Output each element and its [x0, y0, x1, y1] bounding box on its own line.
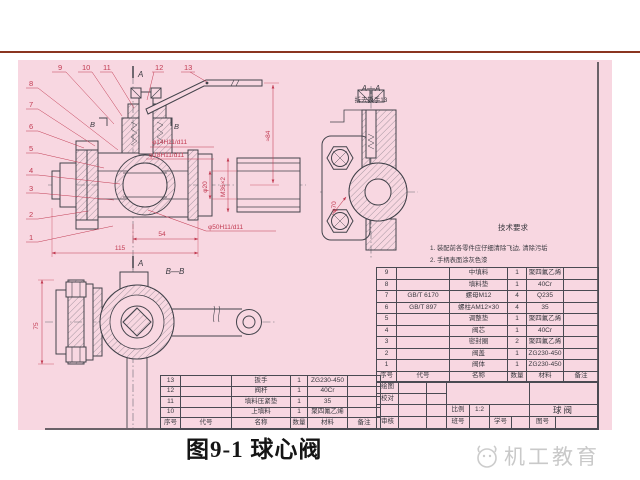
bom-cell: 5: [377, 314, 397, 326]
bom-cell: 填料压紧垫: [232, 397, 291, 408]
class-label: 班号: [447, 417, 470, 429]
bom-cell: 3: [377, 337, 397, 349]
watermark-logo-icon: [474, 442, 500, 470]
bom-cell: Q235: [527, 291, 564, 303]
scale-label: 比例: [447, 405, 470, 417]
drawing-title: 球阀: [530, 405, 598, 417]
bom-cell: 4: [508, 303, 527, 315]
bom-cell: 聚四氟乙烯: [527, 337, 564, 349]
bom-cell: 螺母M12: [450, 291, 508, 303]
bom-header: 序号: [161, 418, 181, 429]
bom-header: 名称: [232, 418, 291, 429]
bom-cell: 调整垫: [450, 314, 508, 326]
scanned-textbook-page: φ14H11/d11 φ18H11/d11 φ50H11/d11 φ20 M36…: [0, 0, 640, 480]
bom-cell: 1: [291, 387, 308, 398]
bom-cell: 4: [377, 326, 397, 338]
top-divider-line: [0, 51, 640, 53]
bom-cell: 1: [508, 314, 527, 326]
bom-cell: 35: [308, 397, 348, 408]
bom-cell: 1: [291, 397, 308, 408]
sheet-label: 图号: [530, 417, 556, 429]
bom-cell: 7: [377, 291, 397, 303]
bom-cell: ZG230-450: [527, 349, 564, 361]
bom-header: 数量: [291, 418, 308, 429]
reviewer-label: 审核: [377, 417, 399, 429]
bom-cell: 阀芯: [450, 326, 508, 338]
bom-cell: 1: [508, 349, 527, 361]
bom-cell: 40Cr: [527, 280, 564, 292]
bom-cell: 阀体: [450, 360, 508, 372]
bom-cell: 聚四氟乙烯: [527, 314, 564, 326]
bom-cell: 40Cr: [527, 326, 564, 338]
bom-cell: 中填料: [450, 268, 508, 280]
bom-cell: 40Cr: [308, 387, 348, 398]
bom-cell: ZG230-450: [527, 360, 564, 372]
bom-header: 代号: [181, 418, 232, 429]
bom-cell: 阀盖: [450, 349, 508, 361]
bom-cell: 10: [161, 408, 181, 419]
watermark-text: 机工教育: [504, 441, 600, 471]
bom-cell: 8: [377, 280, 397, 292]
drafter-label: 绘图: [377, 382, 399, 394]
bom-cell: 上填料: [232, 408, 291, 419]
bom-cell: 扳手: [232, 376, 291, 387]
scale-value: 1:2: [470, 405, 490, 417]
bom-cell: 1: [291, 408, 308, 419]
bom-cell: 密封圈: [450, 337, 508, 349]
student-label: 学号: [490, 417, 512, 429]
bom-cell: 1: [508, 360, 527, 372]
bom-cell: ZG230-450: [308, 376, 348, 387]
bom-header: 材料: [308, 418, 348, 429]
bom-cell: 1: [291, 376, 308, 387]
bom-cell: 聚四氟乙烯: [308, 408, 348, 419]
bom-upper-table: 9中填料1聚四氟乙烯 8填料垫140Cr 7GB/T 6170螺母M124Q23…: [376, 267, 599, 383]
bom-cell: 11: [161, 397, 181, 408]
bom-cell: 1: [508, 326, 527, 338]
bom-cell: 9: [377, 268, 397, 280]
bom-cell: 1: [508, 268, 527, 280]
bom-cell: 聚四氟乙烯: [527, 268, 564, 280]
bom-cell: 35: [527, 303, 564, 315]
bom-cell: 填料垫: [450, 280, 508, 292]
bom-cell: 螺柱AM12×30: [450, 303, 508, 315]
bom-lower-table: 13扳手1ZG230-450 12阀杆140Cr 11填料压紧垫135 10上填…: [160, 375, 381, 430]
title-block: 绘图 校对 审核 比例 1:2 球阀 班号 学号 图号: [376, 381, 599, 430]
bom-cell: GB/T 6170: [397, 291, 450, 303]
bom-cell: 阀杆: [232, 387, 291, 398]
bom-cell: 12: [161, 387, 181, 398]
bom-cell: 1: [508, 280, 527, 292]
checker-label: 校对: [377, 394, 399, 405]
bom-cell: GB/T 897: [397, 303, 450, 315]
bom-cell: 6: [377, 303, 397, 315]
watermark: 机工教育: [474, 441, 600, 471]
bom-cell: 1: [377, 360, 397, 372]
figure-caption: 图9-1 球心阀: [186, 430, 322, 464]
bom-cell: 4: [508, 291, 527, 303]
bom-cell: 2: [508, 337, 527, 349]
bom-cell: 13: [161, 376, 181, 387]
bom-cell: 2: [377, 349, 397, 361]
